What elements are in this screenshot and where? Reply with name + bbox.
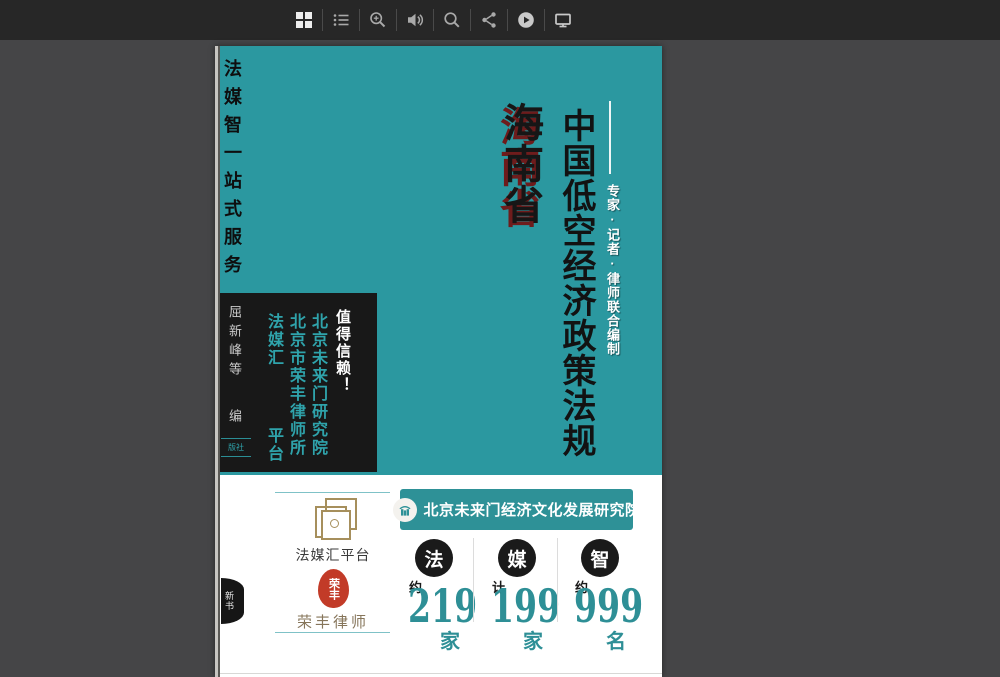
spine-title: 法媒智一站式服务 xyxy=(218,59,244,283)
fullscreen-monitor-icon xyxy=(554,11,572,29)
rongfeng-seal-text: 荣丰 xyxy=(326,578,342,600)
org-column-2: 北京市荣丰律师所 xyxy=(283,313,307,463)
fullscreen-button[interactable] xyxy=(545,0,581,40)
thumbnails-grid-icon xyxy=(295,11,313,29)
editor-role: 编 xyxy=(224,409,243,422)
publisher-partial-text: 版社 xyxy=(221,438,251,457)
stat-unit: 家 xyxy=(523,625,543,654)
stat-value: 999 xyxy=(574,583,643,629)
stat-circle-zhi: 智 xyxy=(581,539,619,577)
cover-subtitle: 专家·记者·律师联合编制 xyxy=(603,184,622,356)
zoom-in-icon xyxy=(369,11,387,29)
rongfeng-label: 荣丰律师 xyxy=(275,611,391,632)
org-column-3: 法媒汇 平台 xyxy=(261,313,285,463)
cover-teal-section: 法媒智一站式服务 海南省 中国低空经济政策法规 专家·记者·律师联合编制 值得信… xyxy=(215,46,662,475)
search-button[interactable] xyxy=(434,0,470,40)
viewer-toolbar xyxy=(0,0,1000,40)
new-book-badge-text: 新书 xyxy=(223,591,236,611)
search-icon xyxy=(443,11,461,29)
new-book-badge: 新书 xyxy=(221,578,244,624)
stat-unit: 家 xyxy=(440,625,460,654)
share-icon xyxy=(480,11,498,29)
org-column-3-top: 法媒汇 xyxy=(261,313,285,367)
cover-white-section: 法媒汇平台 荣丰 荣丰律师 北京未来门经济文化发展研究院 法 xyxy=(215,475,662,677)
divider-line-bottom xyxy=(275,632,390,633)
book-cover-page[interactable]: 法媒智一站式服务 海南省 中国低空经济政策法规 专家·记者·律师联合编制 值得信… xyxy=(215,46,662,677)
main-title: 中国低空经济政策法规 xyxy=(552,108,601,458)
autoplay-button[interactable] xyxy=(508,0,544,40)
trust-slogan: 值得信赖！ xyxy=(332,309,353,394)
autoplay-icon xyxy=(517,11,535,29)
share-button[interactable] xyxy=(471,0,507,40)
table-of-contents-icon xyxy=(332,11,350,29)
stat-divider xyxy=(557,538,558,622)
thumbnails-button[interactable] xyxy=(286,0,322,40)
stat-unit: 名 xyxy=(606,625,626,654)
famei-hui-label: 法媒汇平台 xyxy=(275,545,391,565)
stat-value: 219 xyxy=(408,583,477,629)
stat-column-mei: 媒 计 199 家 xyxy=(491,535,543,653)
toolbar-button-group xyxy=(286,0,581,40)
org-column-3-bottom: 平台 xyxy=(261,427,285,463)
table-of-contents-button[interactable] xyxy=(323,0,359,40)
institute-gate-logo-icon xyxy=(393,498,417,522)
institute-banner: 北京未来门经济文化发展研究院 xyxy=(400,489,633,530)
decorative-line xyxy=(609,101,611,174)
page-bottom-edge xyxy=(215,673,662,674)
region-title: 海南省 xyxy=(491,102,549,225)
stat-circle-mei: 媒 xyxy=(498,539,536,577)
document-viewer: 法媒智一站式服务 海南省 中国低空经济政策法规 专家·记者·律师联合编制 值得信… xyxy=(0,0,1000,677)
divider-line-top xyxy=(275,492,390,493)
audio-button[interactable] xyxy=(397,0,433,40)
stat-value: 199 xyxy=(491,583,560,629)
famei-hui-seal-logo xyxy=(315,498,359,542)
rongfeng-red-seal: 荣丰 xyxy=(318,569,349,608)
institute-banner-text: 北京未来门经济文化发展研究院 xyxy=(424,499,641,520)
audio-icon xyxy=(406,11,424,29)
publisher-black-box: 值得信赖！ 北京未来门研究院 北京市荣丰律师所 法媒汇 平台 屈新峰等 编 版社 xyxy=(220,293,377,472)
editors-names: 屈新峰等 xyxy=(224,305,243,381)
org-column-1: 北京未来门研究院 xyxy=(305,313,329,463)
stat-divider xyxy=(473,538,474,622)
stat-circle-fa: 法 xyxy=(415,539,453,577)
page-spine-edge xyxy=(215,46,221,677)
stat-column-zhi: 智 约 999 名 xyxy=(574,535,626,653)
stat-column-fa: 法 约 219 家 xyxy=(408,535,460,653)
zoom-in-button[interactable] xyxy=(360,0,396,40)
